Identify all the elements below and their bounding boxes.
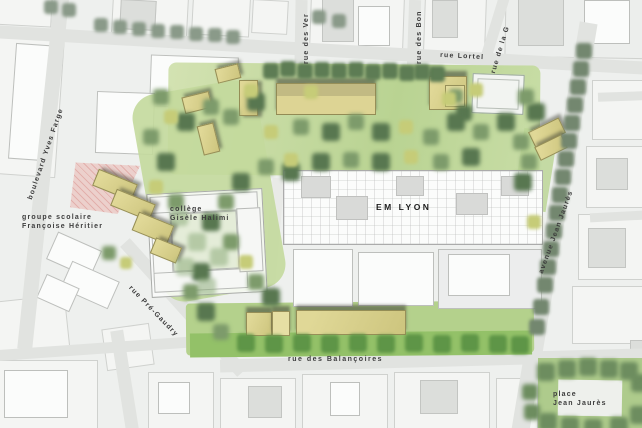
new-building (239, 80, 258, 116)
building-outline (432, 0, 458, 38)
building-outline (518, 0, 564, 46)
label-college-line1: collège (170, 206, 230, 215)
new-building (246, 312, 272, 336)
building-outline (322, 0, 354, 42)
college-wing (236, 207, 263, 272)
site-plan-map: boulevard Yves Farge rue des Ver rue des… (0, 0, 642, 428)
building-south-of-em-lyon (358, 252, 434, 306)
label-college: collège Gisèle Halimi (170, 206, 230, 223)
sports-field-lines (476, 78, 519, 109)
building-outline (4, 370, 68, 418)
label-rue-des-balancoires: rue des Balançoires (288, 355, 383, 364)
em-lyon-roof-cell (456, 193, 488, 215)
em-lyon-roof-cell (301, 176, 331, 198)
em-lyon-roof-cell (501, 176, 529, 196)
new-building (272, 311, 290, 336)
city-block (191, 0, 251, 37)
building-south-of-em-lyon (293, 249, 353, 307)
city-block (0, 0, 53, 28)
label-em-lyon: EM LYON (376, 203, 431, 212)
label-groupe-scolaire: groupe scolaire Françoise Héritier (22, 214, 103, 231)
city-block (251, 0, 289, 35)
label-rue-des-bon: rue des Bon (415, 10, 424, 64)
building-outline (358, 6, 390, 46)
new-building (445, 85, 465, 107)
label-place-line1: place (553, 391, 607, 400)
building-outline (420, 380, 458, 414)
new-building-long-bar (276, 83, 376, 115)
building-south-of-em-lyon (448, 254, 510, 296)
college-wing (153, 268, 248, 293)
new-building-long-bar-south (296, 310, 406, 335)
em-lyon-roof-cell (336, 196, 368, 220)
label-groupe-scolaire-line1: groupe scolaire (22, 214, 103, 223)
building-outline (158, 382, 190, 414)
city-block (572, 286, 642, 344)
label-place-line2: Jean Jaurès (553, 400, 607, 409)
building-outline (330, 382, 360, 416)
em-lyon-roof-cell (396, 176, 424, 196)
building-outline (596, 158, 628, 190)
label-place-jean-jaures: place Jean Jaurès (553, 391, 607, 408)
road-right-1 (598, 91, 642, 102)
label-groupe-scolaire-line2: Françoise Héritier (22, 223, 103, 232)
city-block (592, 80, 642, 140)
building-outline (119, 0, 157, 31)
sports-field (471, 73, 524, 115)
building-outline (248, 386, 282, 418)
label-rue-des-ver: rue des Ver (302, 13, 311, 64)
building-outline (588, 228, 626, 268)
label-college-line2: Gisèle Halimi (170, 215, 230, 224)
